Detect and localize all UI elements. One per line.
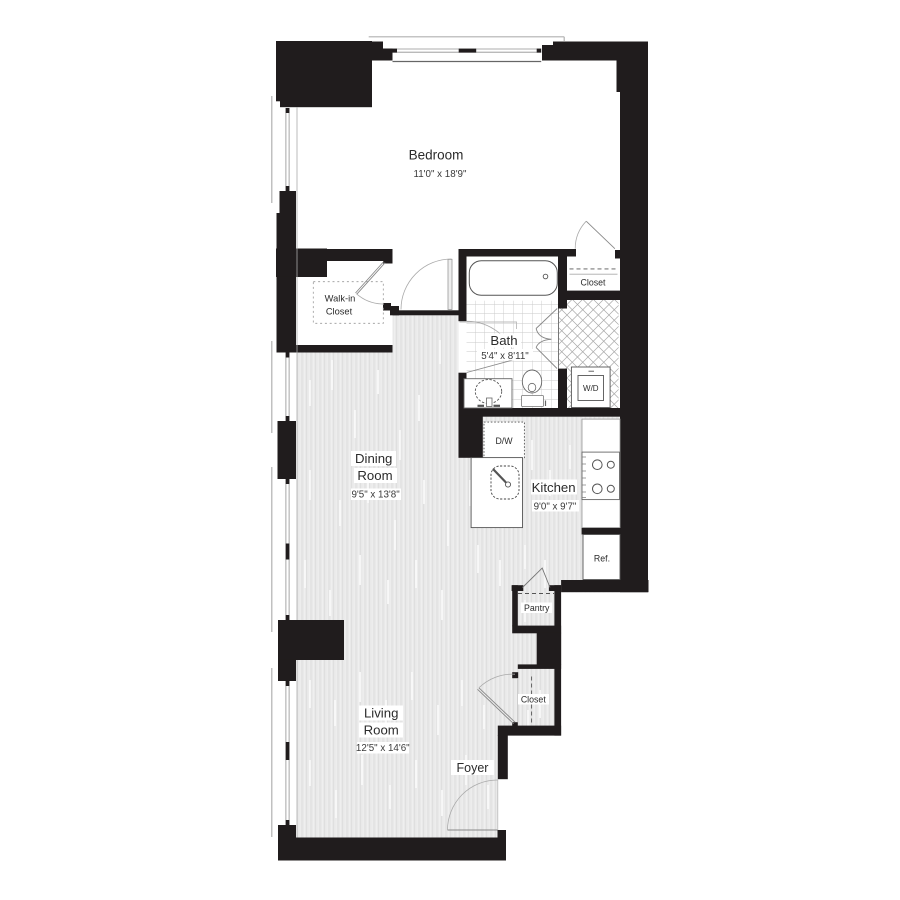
svg-text:12'5" x 14'6": 12'5" x 14'6" [356,743,410,754]
svg-text:Closet: Closet [521,695,546,705]
svg-text:Living: Living [364,706,398,721]
svg-text:Dining: Dining [355,451,392,466]
svg-text:W/D: W/D [583,384,599,393]
svg-text:Kitchen: Kitchen [532,480,576,495]
svg-text:11'0" x 18'9": 11'0" x 18'9" [413,169,467,180]
svg-text:9'5" x 13'8": 9'5" x 13'8" [351,490,400,501]
svg-text:Room: Room [357,468,392,483]
svg-text:Pantry: Pantry [524,603,550,613]
svg-text:Closet: Closet [581,278,606,288]
svg-text:9'0" x 9'7": 9'0" x 9'7" [534,502,577,513]
svg-text:Closet: Closet [326,307,353,317]
svg-text:5'4" x 8'11": 5'4" x 8'11" [481,351,529,362]
svg-text:Room: Room [364,723,399,738]
svg-text:D/W: D/W [495,436,513,446]
svg-text:Ref.: Ref. [594,554,610,564]
svg-text:Bedroom: Bedroom [409,148,464,163]
svg-text:Foyer: Foyer [457,761,489,775]
svg-text:Bath: Bath [490,333,517,348]
svg-text:Walk-in: Walk-in [325,294,356,304]
